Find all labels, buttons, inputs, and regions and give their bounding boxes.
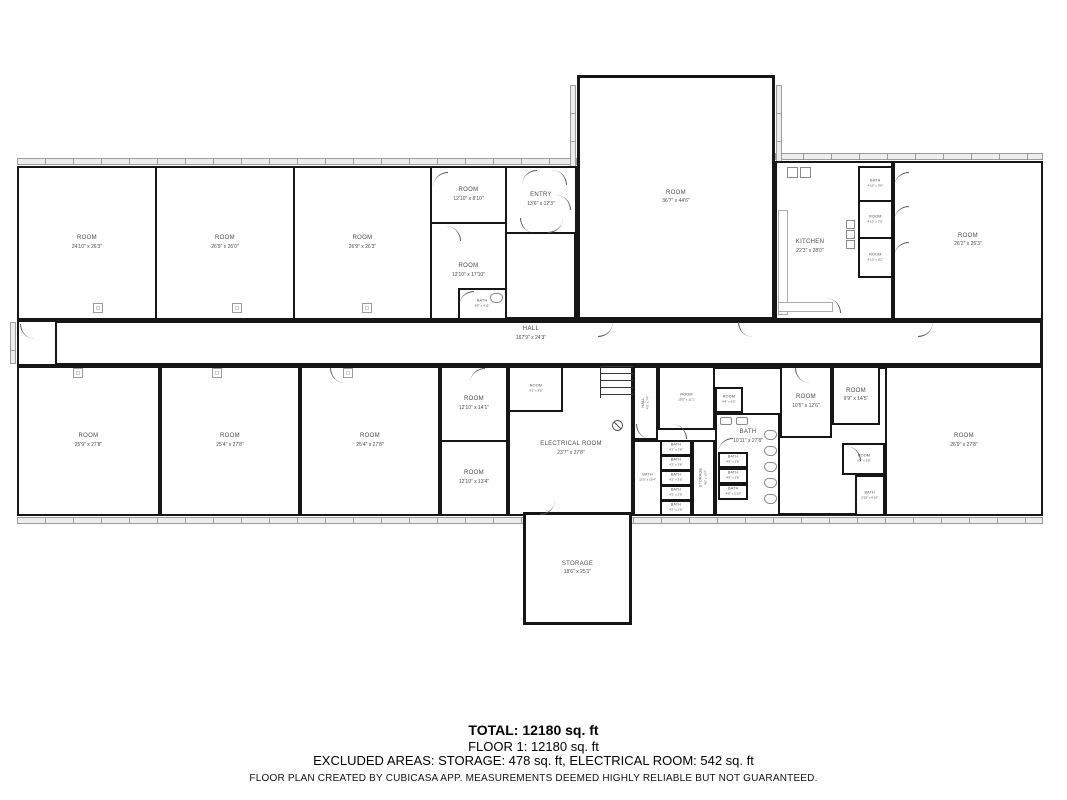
- room-name: STORAGE: [698, 468, 704, 487]
- toilet-icon: [490, 293, 503, 303]
- room-dims: 4'4" x 6'3": [722, 400, 736, 405]
- kitchen-counter: [778, 210, 788, 315]
- toilet-icon: [764, 446, 777, 456]
- room-name: ELECTRICAL ROOM: [540, 440, 602, 449]
- sink-icon: [720, 417, 732, 425]
- room-dims: 4'2" x 2'6": [669, 448, 683, 453]
- summary-floor: FLOOR 1: 12180 sq. ft: [0, 739, 1067, 754]
- room-bottom-left-5: ROOM12'10" x 13'4": [440, 440, 508, 516]
- room-dims: 11'0" x 16'4": [639, 478, 656, 483]
- bath-stall: BATH4'9" x 2'6": [718, 468, 748, 484]
- room-kitchen-2: ROOM4'10" x 6'2": [858, 237, 893, 278]
- room-name: ROOM: [216, 432, 243, 441]
- wall-fixture-icon: [212, 368, 222, 378]
- wall-fixture-icon: [93, 303, 103, 313]
- room-dims: 4'9" x 2'10": [725, 492, 740, 497]
- room-dims: 4'5" x 13'7": [704, 468, 709, 487]
- room-dims: 12'10" x 13'4": [459, 479, 489, 487]
- room-middle-small: ROOM4'4" x 6'3": [715, 387, 743, 413]
- room-bottom-left-2: ROOM25'4" x 27'8": [160, 366, 300, 516]
- storage-room: STORAGE18'6" x 25'1": [523, 512, 632, 625]
- bath-bottom-right: BATH3'10" x 6'10": [855, 475, 885, 516]
- room-name: ROOM: [356, 432, 383, 441]
- sink-icon: [736, 417, 748, 425]
- toilet-icon: [764, 478, 777, 488]
- room-name: STORAGE: [562, 560, 593, 569]
- appliance-icon: [846, 230, 855, 239]
- room-name: ROOM: [662, 189, 689, 198]
- summary-excluded-areas: EXCLUDED AREAS: STORAGE: 478 sq. ft, ELE…: [0, 753, 1067, 768]
- appliance-icon: [800, 167, 811, 178]
- room-name: ROOM: [72, 234, 102, 243]
- room-dims: 26'9" x 26'3": [349, 244, 376, 252]
- room-dims: 26'2" x 26'3": [954, 241, 981, 249]
- window-strip: [775, 153, 1043, 160]
- room-dims: 22'3" x 28'0": [796, 248, 823, 256]
- room-dims: 167'9" x 24'3": [516, 335, 546, 343]
- room-top-left-1: ROOM24'10" x 26'3": [17, 166, 157, 320]
- room-electrical-small: ROOM9'1" x 8'0": [508, 366, 563, 412]
- room-dims: 12'10" x 17'10": [452, 272, 485, 280]
- room-dims: 4'10" x 7'5": [868, 220, 883, 225]
- room-name: HALL: [523, 325, 539, 334]
- bath-stall: BATH4'2" x 2'6": [660, 500, 692, 516]
- room-dims: 4'2" x 2'6": [669, 493, 683, 498]
- kitchen-counter: [778, 302, 833, 312]
- toilet-icon: [764, 430, 777, 440]
- room-dims: 10'5" x 12'6": [792, 403, 819, 411]
- bath-stall: BATH4'2" x 2'6": [660, 455, 692, 471]
- toilet-icon: [764, 462, 777, 472]
- bath-stall: BATH4'9" x 2'6": [718, 452, 748, 468]
- appliance-icon: [846, 220, 855, 229]
- kitchen-label: KITCHEN22'3" x 28'0": [783, 238, 837, 256]
- room-dims: 23'7" x 27'8": [557, 450, 584, 458]
- room-dims: 12'10" x 14'1": [459, 405, 489, 413]
- room-top-left-3: ROOM26'9" x 26'3": [293, 166, 432, 320]
- room-bottom-right-2: ROOM9'9" x 14'5": [832, 366, 880, 425]
- fixture-symbol-icon: [612, 420, 623, 431]
- room-name: HALL: [640, 396, 646, 410]
- bath-kitchen: BATH4'10" x 5'9": [858, 166, 893, 202]
- room-top-center: ROOM36'7" x 44'6": [577, 75, 775, 320]
- room-dims: 4'2" x 2'6": [669, 478, 683, 483]
- room-name: BATH: [740, 428, 757, 437]
- room-dims: 12'10" x 8'10": [453, 196, 483, 204]
- appliance-icon: [787, 167, 798, 178]
- bath-stall: BATH4'2" x 2'6": [660, 485, 692, 501]
- room-name: ROOM: [954, 232, 981, 241]
- room-dims: 24'10" x 26'3": [72, 244, 102, 252]
- room-name: ROOM: [844, 387, 869, 396]
- room-dims: 4'9" x 2'6": [726, 460, 740, 465]
- room-top-left-2: ROOM26'9" x 26'0": [155, 166, 295, 320]
- room-dims: 4'10" x 6'2": [868, 258, 883, 263]
- wall-fixture-icon: [73, 368, 83, 378]
- bath-left: BATH11'0" x 16'4": [633, 440, 662, 516]
- room-middle: ROOM10'5" x 11'1": [658, 366, 715, 430]
- room-dims: 36'7" x 44'6": [662, 198, 689, 206]
- storage-strip: STORAGE4'5" x 13'7": [692, 440, 715, 516]
- room-dims: 10'11" x 27'8": [733, 438, 763, 446]
- wall-fixture-icon: [232, 303, 242, 313]
- wall-fixture-icon: [362, 303, 372, 313]
- window-strip: [10, 322, 16, 364]
- room-dims: 4'2" x 2'6": [669, 508, 683, 513]
- room-dims: 4'2" x 2'6": [669, 463, 683, 468]
- room-bottom-left-1: ROOM25'9" x 27'8": [17, 366, 160, 516]
- room-dims: 26'9" x 27'8": [950, 442, 977, 450]
- bath-stall: BATH4'2" x 2'6": [660, 440, 692, 456]
- room-dims: 9'1" x 8'0": [529, 389, 543, 394]
- appliance-icon: [846, 240, 855, 249]
- room-dims: 8'5" x 4'11": [475, 304, 490, 309]
- room-name: ROOM: [349, 234, 376, 243]
- room-dims: 4'9" x 2'6": [726, 476, 740, 481]
- stairs: [600, 366, 635, 398]
- room-name: ROOM: [459, 395, 489, 404]
- room-bottom-left-3: ROOM25'4" x 27'8": [300, 366, 440, 516]
- room-name: ROOM: [950, 432, 977, 441]
- room-top-right: ROOM26'2" x 26'3": [893, 161, 1043, 320]
- window-strip: [17, 158, 577, 165]
- room-dims: 25'4" x 27'8": [356, 442, 383, 450]
- room-name: ROOM: [792, 393, 819, 402]
- room-name: KITCHEN: [796, 238, 824, 247]
- room-name: ENTRY: [527, 191, 554, 200]
- bath-stall: BATH4'9" x 2'10": [718, 484, 748, 500]
- bath-stall: BATH4'2" x 2'6": [660, 470, 692, 486]
- summary-total: TOTAL: 12180 sq. ft: [0, 722, 1067, 738]
- room-name: ROOM: [459, 469, 489, 478]
- room-name: ROOM: [452, 262, 485, 271]
- room-bottom-right-large: ROOM26'9" x 27'8": [885, 366, 1043, 516]
- room-dims: 3'10" x 6'10": [862, 496, 879, 501]
- summary-disclaimer: FLOOR PLAN CREATED BY CUBICASA APP. MEAS…: [0, 773, 1067, 784]
- room-dims: 26'9" x 26'0": [211, 244, 238, 252]
- room-dims: 4'5" x 7'4": [646, 396, 651, 410]
- floor-plan-canvas: ROOM24'10" x 26'3" ROOM26'9" x 26'0" ROO…: [0, 0, 1067, 800]
- toilet-icon: [764, 494, 777, 504]
- room-dims: 13'6" x 12'3": [527, 201, 554, 209]
- room-dims: 9'9" x 14'5": [844, 396, 869, 404]
- room-dims: 25'4" x 27'8": [216, 442, 243, 450]
- room-name: ROOM: [453, 186, 483, 195]
- room-dims: 10'5" x 11'1": [678, 398, 695, 403]
- room-name: ROOM: [211, 234, 238, 243]
- electrical-room-label: ELECTRICAL ROOM23'7" x 27'8": [539, 440, 603, 458]
- room-dims: 18'6" x 25'1": [562, 569, 593, 577]
- room-kitchen-1: ROOM4'10" x 7'5": [858, 200, 893, 239]
- room-name: ROOM: [75, 432, 102, 441]
- room-dims: 25'9" x 27'8": [75, 442, 102, 450]
- room-dims: 4'10" x 5'9": [868, 184, 883, 189]
- hall-label: HALL167'9" x 24'3": [505, 324, 557, 344]
